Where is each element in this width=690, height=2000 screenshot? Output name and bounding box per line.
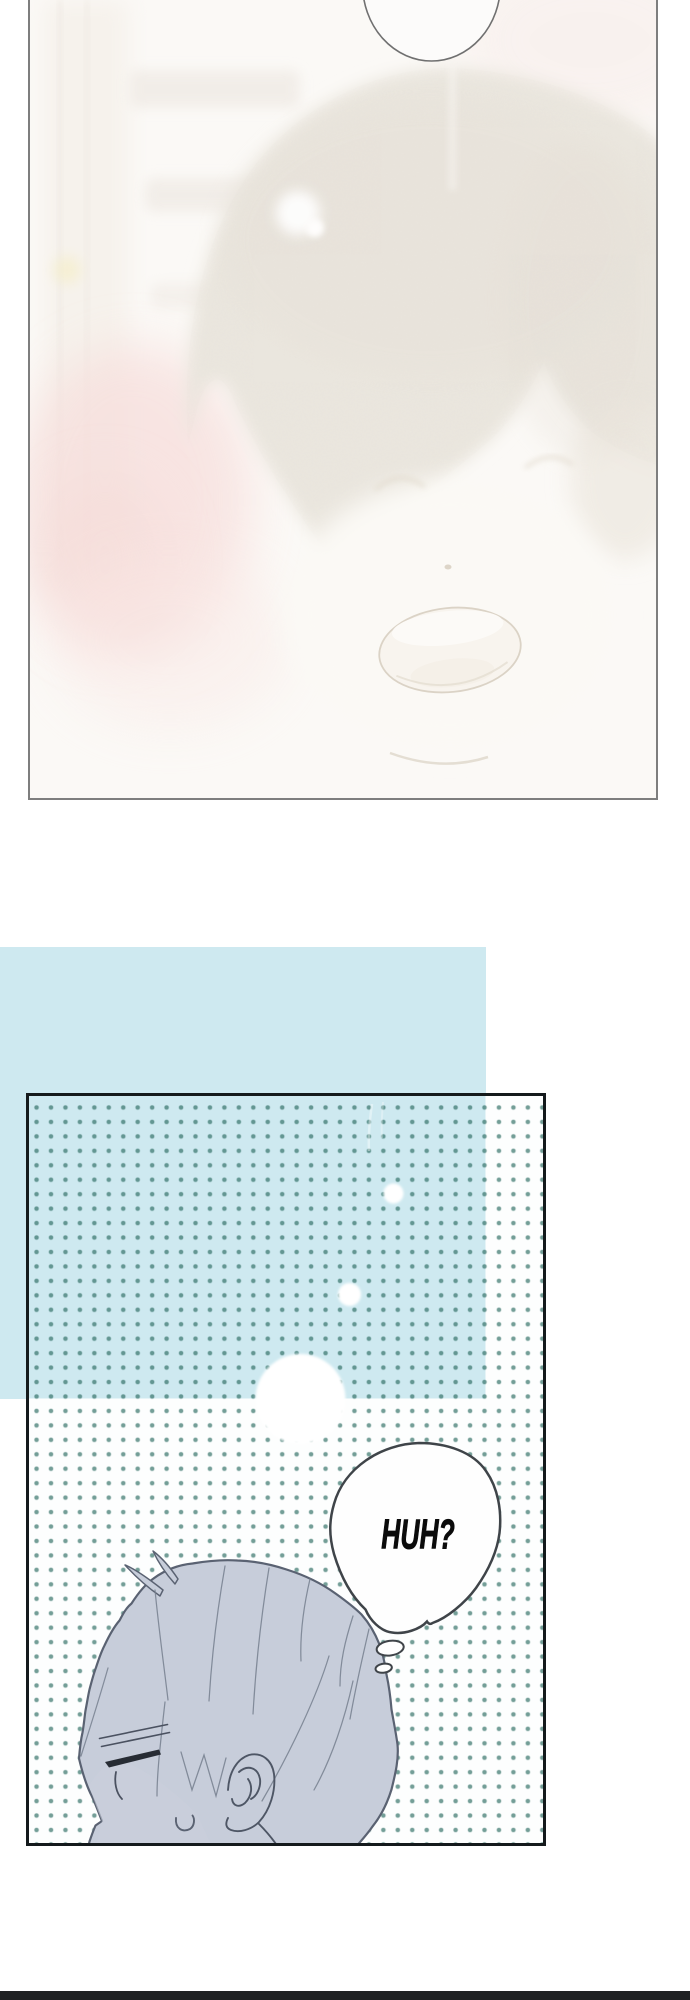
svg-text:HUH?: HUH? [381, 1511, 454, 1558]
